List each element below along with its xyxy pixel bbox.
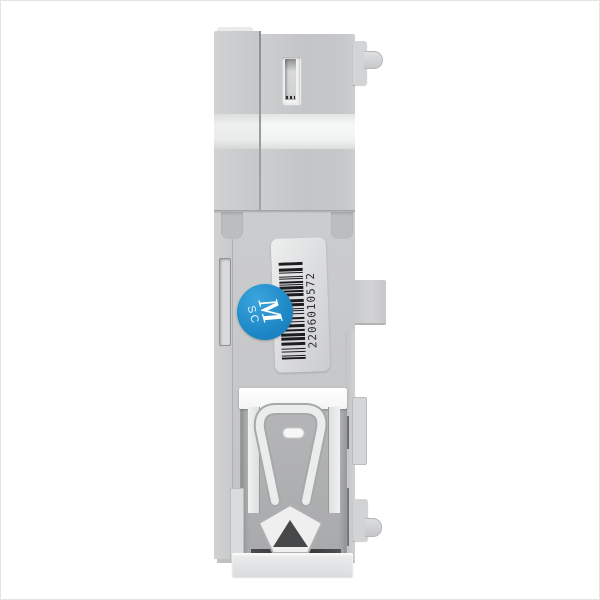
qc-sticker: M SC bbox=[237, 284, 293, 340]
top-vent-slot-inner bbox=[285, 59, 296, 100]
din-clip-latch-pill bbox=[283, 428, 304, 438]
din-clip bbox=[246, 401, 346, 561]
top-vent-slot-marks bbox=[286, 96, 295, 99]
molded-tab-left bbox=[221, 212, 243, 239]
right-step-block bbox=[352, 397, 367, 465]
molded-tab-right bbox=[331, 212, 353, 239]
bottom-plate bbox=[232, 553, 353, 577]
right-peg-top bbox=[364, 51, 383, 69]
module-light-band-shade bbox=[214, 114, 260, 149]
housing-seam-vertical bbox=[259, 31, 261, 212]
barcode-number: 2206010572 bbox=[302, 261, 321, 358]
product-photo-canvas: 2206010572 M SC bbox=[0, 0, 600, 600]
qc-sticker-text-group: M SC bbox=[244, 295, 286, 329]
right-connector-tab bbox=[355, 280, 386, 325]
din-clip-arch bbox=[260, 409, 322, 501]
left-step-block bbox=[230, 488, 244, 563]
barcode-number-text: 2206010572 bbox=[302, 261, 321, 358]
right-peg-bottom bbox=[365, 518, 382, 537]
left-recess-slot bbox=[219, 258, 231, 346]
